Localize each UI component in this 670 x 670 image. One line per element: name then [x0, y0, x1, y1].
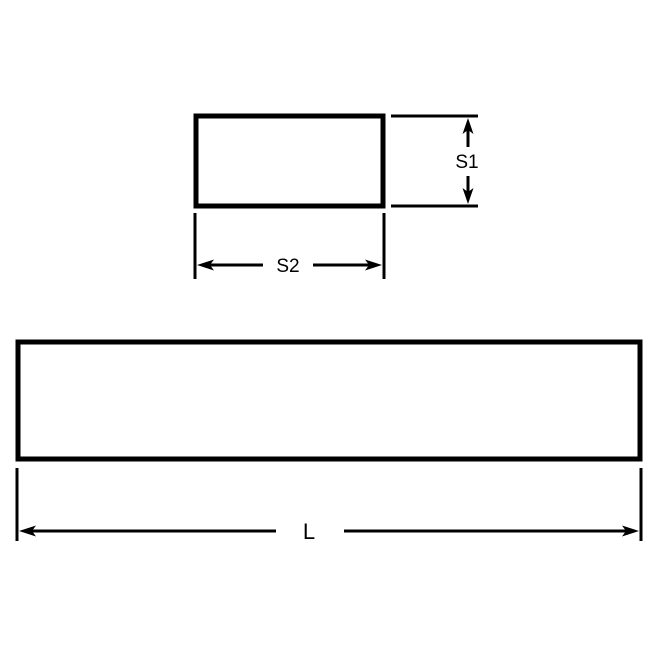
technical-drawing: S1 S2 L — [0, 0, 670, 670]
cross-section-rectangle — [196, 116, 383, 206]
side-view: L — [17, 342, 641, 544]
dimension-label-l: L — [303, 519, 315, 544]
cross-section-view: S1 S2 — [195, 116, 479, 279]
dimension-label-s2: S2 — [276, 256, 299, 277]
dimension-s1: S1 — [391, 116, 479, 206]
dimension-label-s1: S1 — [455, 152, 478, 173]
dimension-s2: S2 — [195, 213, 384, 279]
dimension-diagram-svg: S1 S2 L — [0, 0, 670, 670]
bar-rectangle — [18, 342, 640, 459]
dimension-l: L — [17, 468, 641, 544]
